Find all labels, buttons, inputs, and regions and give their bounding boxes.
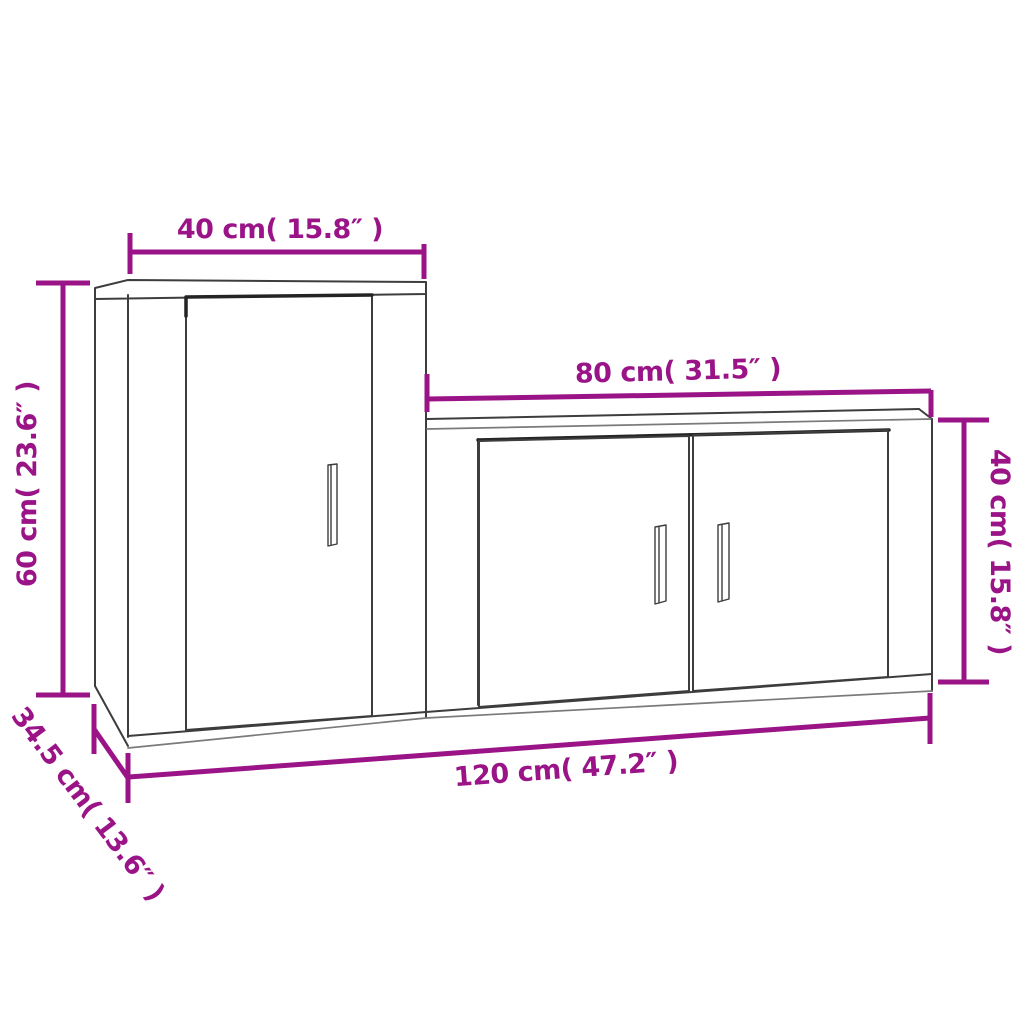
left-cabinet: [95, 280, 426, 746]
left-cabinet-door-top-edge: [186, 295, 372, 297]
right-cabinet-left-door: [479, 436, 689, 707]
dimension-label-left-cabinet-height: 60 cm( 23.6″ ): [12, 381, 43, 587]
dimension-lines: [36, 233, 989, 803]
dimension-label-depth: 34.5 cm( 13.6″ ): [5, 701, 171, 907]
cabinet-base: [128, 674, 932, 748]
dimension-label-right-cabinet-width: 80 cm( 31.5″ ): [575, 353, 782, 389]
right-cabinet-right-door-handle: [718, 523, 729, 602]
diagram-canvas: 40 cm( 15.8″ ) 60 cm( 23.6″ ) 80 cm( 31.…: [0, 0, 1024, 1024]
right-cabinet-left-door-handle: [655, 525, 666, 604]
dimension-labels: 40 cm( 15.8″ ) 60 cm( 23.6″ ) 80 cm( 31.…: [5, 214, 1015, 907]
left-cabinet-door: [186, 295, 372, 730]
right-cabinet: [427, 409, 932, 707]
dimension-label-right-cabinet-height: 40 cm( 15.8″ ): [984, 449, 1015, 655]
left-cabinet-door-handle: [328, 464, 337, 546]
base-bottom-edge: [128, 691, 932, 748]
dim-line-right-cabinet-width: [427, 391, 931, 399]
right-cabinet-top-front-edge: [427, 419, 932, 429]
dimension-label-left-cabinet-width: 40 cm( 15.8″ ): [177, 214, 383, 245]
dimension-diagram: 40 cm( 15.8″ ) 60 cm( 23.6″ ) 80 cm( 31.…: [0, 0, 1024, 1024]
right-cabinet-top-back-edge: [427, 409, 919, 419]
